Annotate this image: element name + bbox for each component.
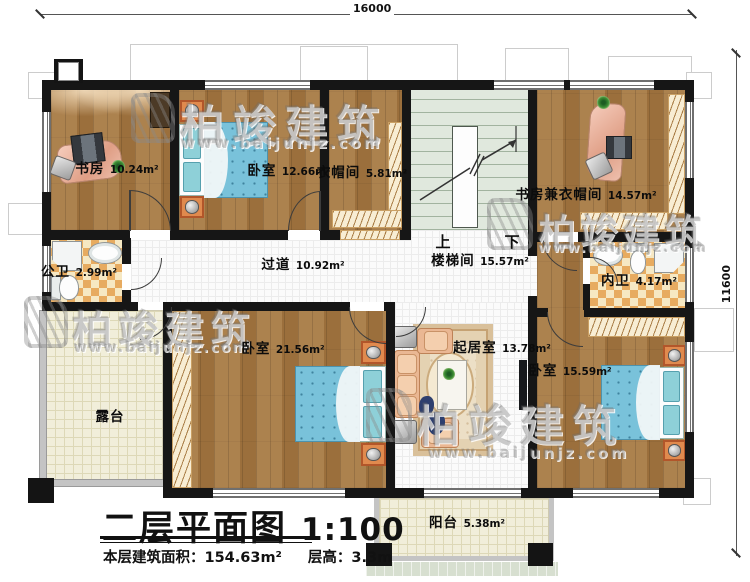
- window-sill: [505, 48, 569, 82]
- window: [685, 102, 694, 178]
- door-leaf: [319, 191, 321, 231]
- roof-outline: [130, 44, 458, 83]
- room-label-study: 书房 10.24m²: [75, 160, 158, 177]
- nightstand: [663, 440, 686, 461]
- sink-icon: [88, 242, 122, 264]
- pillar: [528, 543, 553, 566]
- dimension-right-value: 11600: [720, 262, 733, 306]
- watermark-logo: [366, 388, 412, 442]
- plant-icon: [597, 96, 610, 109]
- room-label-hallway: 过道 10.92m²: [261, 256, 344, 273]
- nightstand: [361, 341, 386, 364]
- wall-segment: [584, 308, 687, 317]
- door-leaf: [129, 190, 131, 231]
- plan-subtitle: 本层建筑面积：154.63m²层高：3.3m: [103, 546, 418, 567]
- room-label-living: 起居室 13.78m²: [453, 339, 551, 356]
- stairs-down-label: 下: [504, 231, 519, 252]
- nightstand: [180, 196, 204, 218]
- dimension-line-right: [736, 50, 737, 556]
- wall-segment: [400, 230, 411, 240]
- room-name: 楼梯间: [431, 253, 475, 269]
- pillar: [28, 478, 54, 503]
- window-sill: [300, 46, 368, 82]
- terrace-railing: [39, 479, 169, 487]
- closet-study2-side: [668, 94, 685, 214]
- room-name: 卧室: [528, 363, 557, 379]
- room-label-public-bath: 公卫 2.99m²: [41, 263, 117, 280]
- nightstand: [663, 345, 686, 366]
- room-name: 公卫: [41, 264, 70, 280]
- room-label-cloakroom: 衣帽间 5.81m²: [317, 164, 408, 181]
- nightstand: [361, 443, 386, 466]
- room-label-inner-bath: 内卫 4.17m²: [601, 272, 677, 289]
- window-sill: [694, 308, 734, 352]
- room-area: 13.78m²: [502, 343, 551, 355]
- room-area: 14.57m²: [608, 190, 657, 202]
- cloakroom-sliding-door: [340, 230, 400, 240]
- room-name: 衣帽间: [317, 165, 361, 181]
- room-label-bedroom2: 卧室 21.56m²: [241, 340, 324, 357]
- floor-plan-canvas: 16000 11600: [0, 0, 750, 582]
- room-name: 阳台: [429, 515, 458, 531]
- room-name: 过道: [261, 257, 290, 273]
- watermark-url: www.baijunjz.com: [538, 240, 708, 256]
- wall-segment: [42, 230, 130, 240]
- room-label-study2: 书房兼衣帽间 14.57m²: [515, 186, 656, 203]
- chimney-flue: [58, 62, 79, 81]
- room-name: 卧室: [247, 163, 276, 179]
- room-name: 内卫: [601, 273, 630, 289]
- watermark-url: www.baijunjz.com: [428, 444, 629, 462]
- closet-bedroom3: [588, 317, 685, 337]
- room-area: 10.92m²: [296, 260, 345, 272]
- room-label-stairwell: 楼梯间 15.57m²: [431, 252, 529, 269]
- room-area: 4.17m²: [636, 276, 677, 288]
- watermark-logo: [131, 93, 175, 143]
- window: [570, 80, 654, 90]
- dimension-top-value: 16000: [350, 2, 394, 15]
- room-name: 书房兼衣帽间: [515, 187, 602, 203]
- sofa-cushion: [397, 354, 417, 374]
- wall-segment: [528, 308, 548, 317]
- flowers-icon: [443, 368, 455, 380]
- bed-blanket: [636, 365, 660, 440]
- floor-height-text: 层高：3.3m: [308, 550, 392, 566]
- window: [573, 488, 659, 498]
- wall-segment: [402, 88, 411, 238]
- window: [685, 342, 694, 432]
- window: [205, 80, 310, 90]
- room-area: 5.38m²: [464, 518, 505, 530]
- title-underline: [100, 536, 312, 543]
- closet-cloakroom-bottom: [332, 210, 402, 228]
- plan-title: 二层平面图1:100: [102, 500, 405, 551]
- plan-scale: 1:100: [301, 512, 405, 548]
- room-label-balcony: 阳台 5.38m²: [429, 514, 505, 531]
- room-area: 15.57m²: [480, 256, 529, 268]
- window: [494, 80, 564, 90]
- sofa-cushion: [424, 331, 448, 351]
- bed-pillows: [659, 367, 684, 439]
- watermark-url: www.baijunjz.com: [181, 134, 382, 152]
- room-area: 2.99m²: [76, 267, 117, 279]
- stairs-up-label: 上: [435, 231, 450, 252]
- wall-segment: [583, 284, 590, 310]
- room-label-bedroom3: 卧室 15.59m²: [528, 362, 611, 379]
- room-name: 露台: [96, 409, 125, 425]
- window: [42, 112, 51, 192]
- room-name: 卧室: [241, 341, 270, 357]
- window-sill: [8, 203, 44, 235]
- computer-monitor-icon: [606, 136, 632, 159]
- wall-segment: [170, 230, 288, 240]
- wall-segment: [320, 230, 340, 240]
- watermark-logo: [24, 296, 68, 348]
- room-name: 起居室: [453, 340, 497, 356]
- room-label-terrace: 露台: [96, 408, 125, 425]
- bed-blanket: [336, 366, 360, 442]
- watermark-url: www.baijunjz.com: [74, 340, 249, 356]
- room-area: 10.24m²: [110, 164, 159, 176]
- room-area: 21.56m²: [276, 344, 325, 356]
- window: [213, 488, 345, 498]
- room-area: 5.81m²: [366, 168, 407, 180]
- room-name: 书房: [75, 161, 104, 177]
- room-area: 15.59m²: [563, 366, 612, 378]
- sliding-door: [424, 488, 521, 498]
- wall-segment: [122, 238, 131, 264]
- plan-title-text: 二层平面图: [102, 509, 287, 549]
- floor-area-text: 本层建筑面积：154.63m²: [103, 550, 282, 566]
